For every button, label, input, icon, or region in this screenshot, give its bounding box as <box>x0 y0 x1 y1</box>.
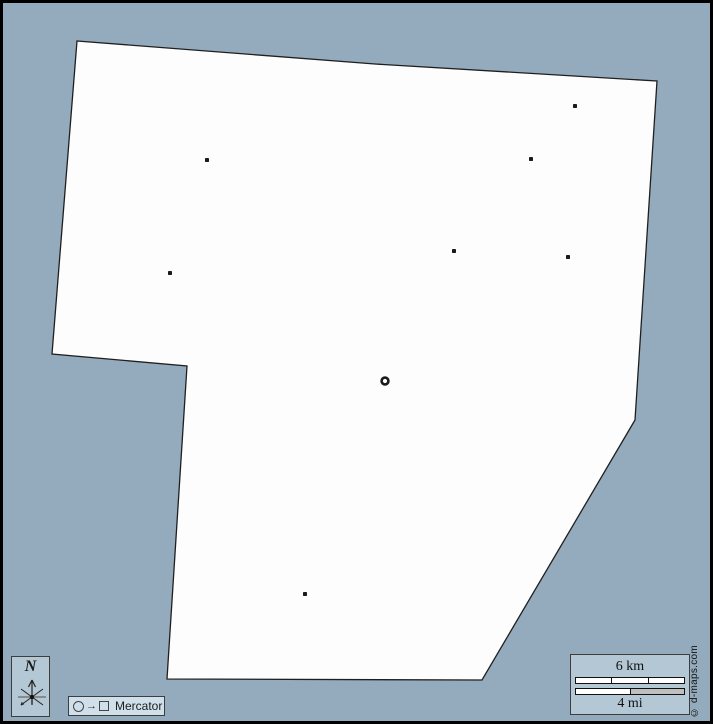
city-dot <box>573 104 577 108</box>
north-arrow-icon <box>12 676 49 716</box>
north-label: N <box>25 657 37 676</box>
copyright-text: © d-maps.com <box>689 645 700 717</box>
north-arrow-box: N <box>11 656 50 717</box>
scale-km-segment <box>576 678 612 683</box>
circle-icon <box>73 701 84 712</box>
city-dot <box>168 271 172 275</box>
territory-outline <box>52 41 657 680</box>
scale-km-segment <box>612 678 648 683</box>
scale-mi-label: 4 mi <box>617 695 642 712</box>
projection-label: Mercator <box>115 699 162 713</box>
scale-mi-bar <box>575 688 685 695</box>
scale-bar-box: 6 km 4 mi <box>570 654 690 715</box>
map-canvas <box>3 3 710 721</box>
scale-km-bar <box>575 677 685 684</box>
scale-km-segment <box>649 678 684 683</box>
arrow-right-icon: → <box>86 701 97 712</box>
scale-mi-segment <box>576 689 631 694</box>
scale-mi-segment <box>631 689 685 694</box>
city-dot <box>566 255 570 259</box>
city-dot <box>452 249 456 253</box>
scale-km-label: 6 km <box>616 658 644 675</box>
city-dot <box>303 592 307 596</box>
map-frame: N → Mercator 6 km 4 mi © d-maps.c <box>0 0 713 724</box>
projection-label-box: → Mercator <box>68 696 165 716</box>
city-dot <box>529 157 533 161</box>
city-dot <box>205 158 209 162</box>
square-icon <box>99 701 109 711</box>
